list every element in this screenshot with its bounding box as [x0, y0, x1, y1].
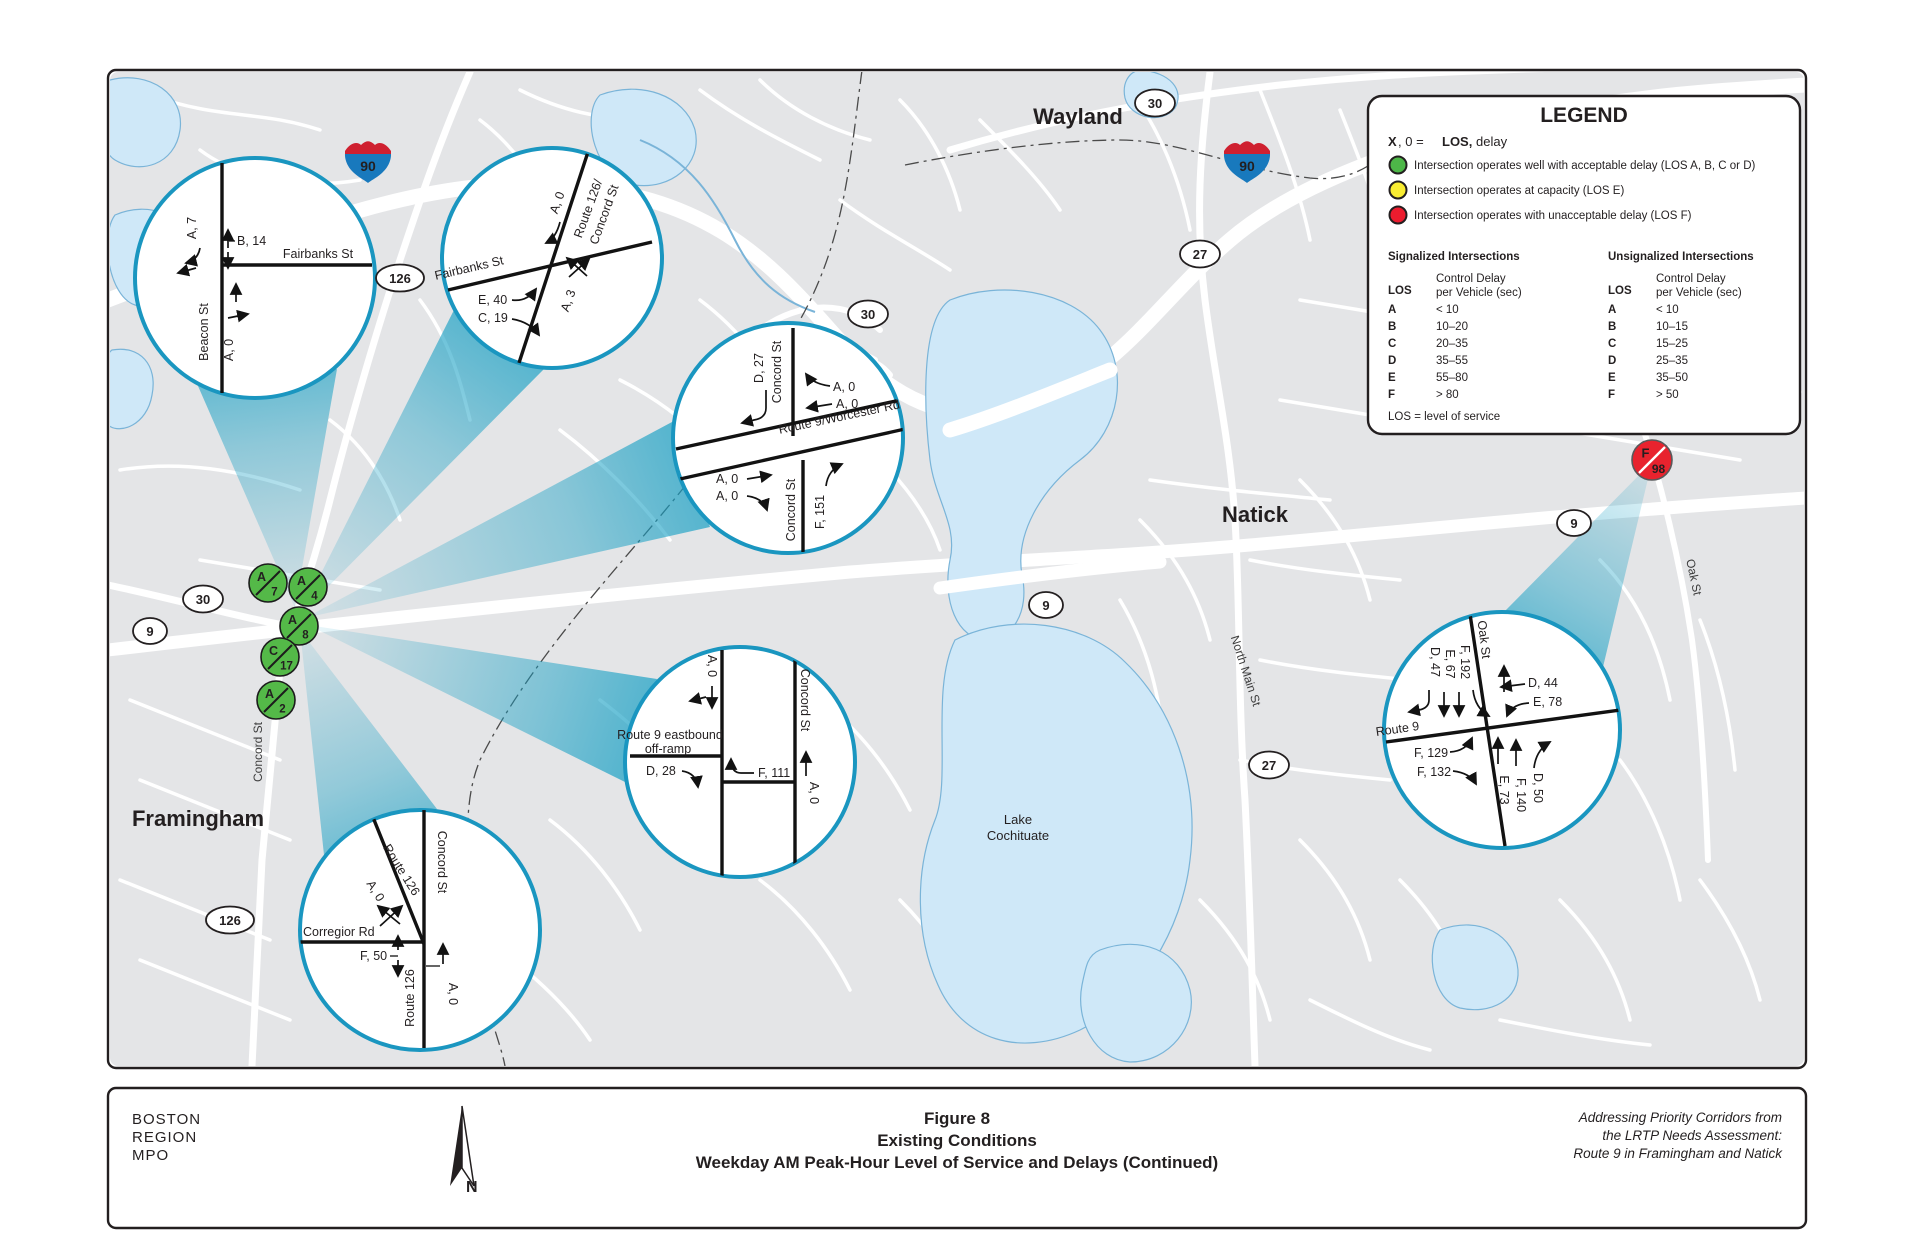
town-label-framingham: Framingham: [132, 806, 264, 831]
los-marker-green: A7: [249, 564, 287, 602]
col-header-los: LOS: [1608, 285, 1632, 297]
los-marker-green: C17: [261, 638, 299, 676]
row-range: 20–35: [1436, 338, 1468, 350]
route-shield-9: 9: [1557, 510, 1591, 536]
los-delay-label: D, 47: [1428, 647, 1442, 677]
legend-green-label: Intersection operates well with acceptab…: [1414, 160, 1755, 172]
figure-canvas: Fairbanks St Beacon St A, 7 B, 14 A, 0 R…: [0, 0, 1913, 1238]
town-label-wayland: Wayland: [1033, 104, 1123, 129]
los-marker-green: A4: [289, 568, 327, 606]
legend-key-mid: , 0 =: [1398, 134, 1424, 149]
los-delay-label: F, 132: [1417, 765, 1451, 779]
callout-beacon-fairbanks: Fairbanks St Beacon St A, 7 B, 14 A, 0: [135, 158, 375, 398]
legend-title: LEGEND: [1540, 104, 1628, 127]
street-label: Concord St: [770, 340, 784, 403]
legend: LEGEND X , 0 = LOS, delay Intersection o…: [1368, 96, 1800, 434]
street-label: Beacon St: [197, 303, 211, 361]
svg-text:A: A: [257, 570, 266, 584]
svg-text:30: 30: [196, 592, 210, 607]
svg-text:C: C: [269, 644, 278, 658]
row-los: B: [1608, 321, 1616, 333]
route-shield-9: 9: [133, 618, 167, 644]
route-shield-126: 126: [206, 907, 254, 934]
los-delay-label: A, 0: [807, 782, 821, 804]
town-label-natick: Natick: [1222, 502, 1289, 527]
credit-line: the LRTP Needs Assessment:: [1602, 1128, 1782, 1143]
col-header-delay-2: per Vehicle (sec): [1436, 287, 1522, 299]
los-delay-label: A, 0: [836, 397, 858, 411]
street-label: Concord St: [435, 831, 449, 894]
street-label: Concord St: [784, 478, 798, 541]
los-marker-green: A2: [257, 681, 295, 719]
legend-red-label: Intersection operates with unacceptable …: [1414, 210, 1692, 222]
legend-footnote: LOS = level of service: [1388, 411, 1500, 423]
credit-line: Addressing Priority Corridors from: [1578, 1110, 1782, 1125]
los-delay-label: D, 28: [646, 764, 676, 778]
svg-text:4: 4: [311, 591, 318, 603]
los-delay-label: E, 40: [478, 293, 507, 307]
row-range: > 80: [1436, 389, 1459, 401]
los-delay-label: E, 73: [1497, 775, 1511, 804]
row-los: F: [1608, 389, 1615, 401]
lake-label: Cochituate: [987, 828, 1049, 843]
svg-text:9: 9: [146, 624, 153, 639]
row-los: C: [1388, 338, 1396, 350]
route-shield-9: 9: [1029, 592, 1063, 618]
los-delay-label: A, 0: [716, 472, 738, 486]
route-shield-30: 30: [1135, 90, 1175, 117]
row-los: E: [1388, 372, 1396, 384]
row-range: 15–25: [1656, 338, 1688, 350]
legend-yellow-dot: [1390, 182, 1407, 199]
org-name-line: REGION: [132, 1129, 197, 1146]
route-shield-126: 126: [376, 265, 424, 292]
figure-subtitle: Weekday AM Peak-Hour Level of Service an…: [696, 1153, 1218, 1172]
figure-title: Existing Conditions: [877, 1131, 1037, 1150]
los-delay-label: F, 111: [758, 766, 790, 780]
col-header-los: LOS: [1388, 285, 1412, 297]
legend-key-los: LOS,: [1442, 134, 1472, 149]
svg-text:126: 126: [389, 271, 411, 286]
row-range: 35–55: [1436, 355, 1468, 367]
lake-label: Lake: [1004, 812, 1032, 827]
los-delay-label: A, 0: [446, 983, 460, 1005]
legend-red-dot: [1390, 207, 1407, 224]
row-range: < 10: [1656, 304, 1679, 316]
svg-text:27: 27: [1193, 247, 1207, 262]
svg-text:8: 8: [302, 630, 309, 642]
legend-yellow-label: Intersection operates at capacity (LOS E…: [1414, 185, 1624, 197]
org-name-line: MPO: [132, 1147, 169, 1164]
los-delay-label: F, 151: [813, 495, 827, 529]
north-arrow-icon: N: [450, 1106, 478, 1196]
svg-text:7: 7: [271, 587, 277, 599]
street-label: Fairbanks St: [283, 247, 354, 261]
svg-text:9: 9: [1042, 598, 1049, 613]
svg-text:30: 30: [861, 307, 875, 322]
los-delay-label: E, 78: [1533, 695, 1562, 709]
los-delay-label: D, 50: [1531, 773, 1545, 803]
street-label: Route 126: [403, 969, 417, 1027]
route-shield-30: 30: [848, 301, 888, 328]
svg-text:A: A: [288, 613, 297, 627]
title-bar: BOSTON REGION MPO N Figure 8 Existing Co…: [108, 1088, 1806, 1228]
row-range: > 50: [1656, 389, 1679, 401]
table-title: Unsignalized Intersections: [1608, 251, 1754, 263]
street-label: Route 9 eastbound: [617, 728, 723, 742]
row-los: B: [1388, 321, 1396, 333]
los-delay-label: A, 0: [833, 380, 855, 394]
svg-text:A: A: [297, 574, 306, 588]
north-label: N: [466, 1179, 478, 1196]
row-los: E: [1608, 372, 1616, 384]
row-range: < 10: [1436, 304, 1459, 316]
callout-circle: [625, 647, 855, 877]
route-shield-27: 27: [1180, 241, 1220, 268]
row-range: 55–80: [1436, 372, 1468, 384]
street-label: off-ramp: [645, 742, 691, 756]
col-header-delay-2: per Vehicle (sec): [1656, 287, 1742, 299]
svg-text:2: 2: [279, 704, 285, 716]
los-delay-label: F, 140: [1514, 778, 1528, 812]
los-delay-label: D, 44: [1528, 676, 1558, 690]
svg-text:90: 90: [1239, 158, 1255, 174]
row-los: A: [1388, 304, 1396, 316]
los-delay-label: A, 0: [716, 489, 738, 503]
svg-text:17: 17: [280, 661, 293, 673]
svg-text:90: 90: [360, 158, 376, 174]
row-los: A: [1608, 304, 1616, 316]
street-label: Corregior Rd: [303, 925, 375, 939]
los-delay-label: F, 129: [1414, 746, 1448, 760]
legend-green-dot: [1390, 157, 1407, 174]
los-delay-label: F, 192: [1458, 645, 1472, 679]
street-label: Concord St: [798, 669, 812, 732]
los-delay-label: D, 27: [752, 353, 766, 383]
callout-route9-concord: Concord St Concord St Route 9/Worcester …: [673, 323, 905, 553]
route-shield-30: 30: [183, 586, 223, 613]
row-los: F: [1388, 389, 1395, 401]
svg-text:F: F: [1642, 446, 1650, 461]
row-los: C: [1608, 338, 1616, 350]
legend-key-x: X: [1388, 134, 1397, 149]
los-delay-label: C, 19: [478, 311, 508, 325]
los-delay-label: A, 7: [185, 217, 199, 239]
credit-line: Route 9 in Framingham and Natick: [1573, 1146, 1783, 1161]
svg-text:A: A: [265, 687, 274, 701]
svg-text:98: 98: [1652, 462, 1666, 476]
table-title: Signalized Intersections: [1388, 251, 1520, 263]
los-delay-label: E, 67: [1443, 649, 1457, 678]
svg-text:126: 126: [219, 913, 241, 928]
col-header-delay-1: Control Delay: [1656, 273, 1726, 285]
org-name-line: BOSTON: [132, 1111, 201, 1128]
legend-box: [1368, 96, 1800, 434]
col-header-delay-1: Control Delay: [1436, 273, 1506, 285]
row-los: D: [1388, 355, 1396, 367]
figure-number: Figure 8: [924, 1109, 990, 1128]
svg-text:27: 27: [1262, 758, 1276, 773]
callout-circle: [135, 158, 375, 398]
row-range: 35–50: [1656, 372, 1688, 384]
row-los: D: [1608, 355, 1616, 367]
legend-key-line: X , 0 = LOS, delay: [1388, 134, 1508, 149]
svg-text:30: 30: [1148, 96, 1162, 111]
route-shield-27: 27: [1249, 752, 1289, 779]
row-range: 25–35: [1656, 355, 1688, 367]
svg-text:9: 9: [1570, 516, 1577, 531]
row-range: 10–15: [1656, 321, 1688, 333]
legend-key-delay: delay: [1476, 134, 1508, 149]
street-label-concord: Concord St: [251, 721, 265, 782]
row-range: 10–20: [1436, 321, 1468, 333]
los-delay-label: F, 50: [360, 949, 387, 963]
los-delay-label: A, 0: [705, 655, 719, 677]
los-marker-red: F 98: [1632, 440, 1672, 480]
los-delay-label: A, 0: [222, 339, 236, 361]
los-delay-label: B, 14: [237, 234, 266, 248]
